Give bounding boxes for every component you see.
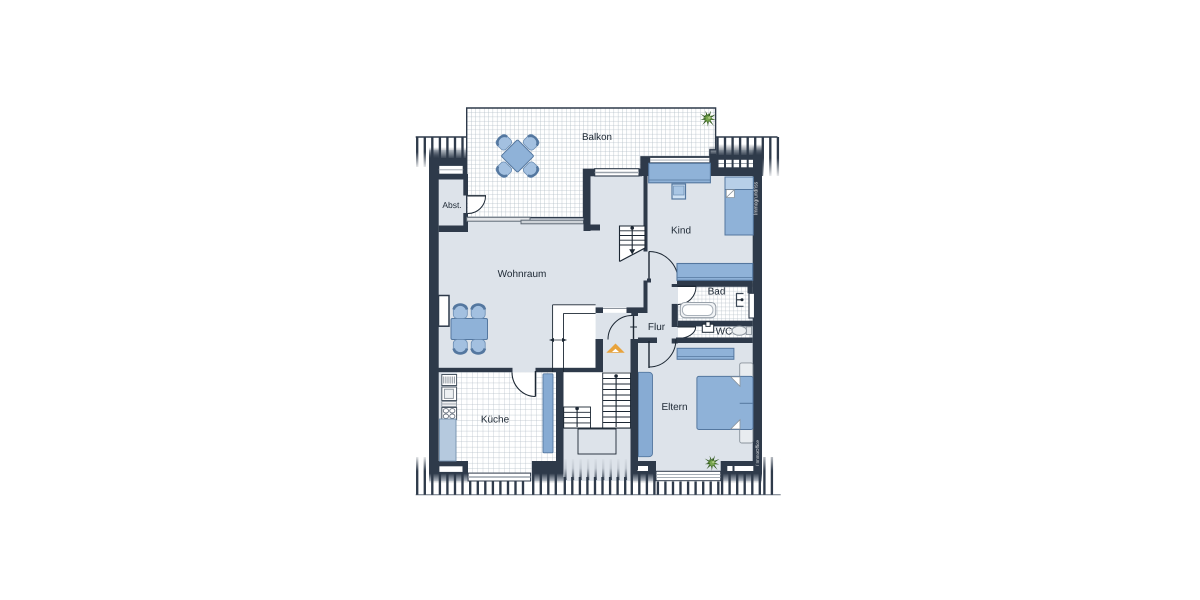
svg-text:/ ImmoOffice: / ImmoOffice bbox=[755, 440, 760, 466]
svg-text:Flur: Flur bbox=[648, 322, 666, 333]
svg-text:Küche: Küche bbox=[481, 414, 510, 425]
svg-text:Balkon: Balkon bbox=[582, 132, 612, 143]
svg-text:Abst.: Abst. bbox=[442, 200, 461, 210]
svg-text:Kind: Kind bbox=[671, 225, 691, 236]
svg-text:Wohnraum: Wohnraum bbox=[498, 269, 547, 280]
svg-text:Bad: Bad bbox=[708, 286, 726, 297]
svg-text:Eltern: Eltern bbox=[661, 402, 687, 413]
svg-text:Immogrundriss: Immogrundriss bbox=[754, 181, 760, 215]
svg-text:WC: WC bbox=[716, 326, 733, 337]
